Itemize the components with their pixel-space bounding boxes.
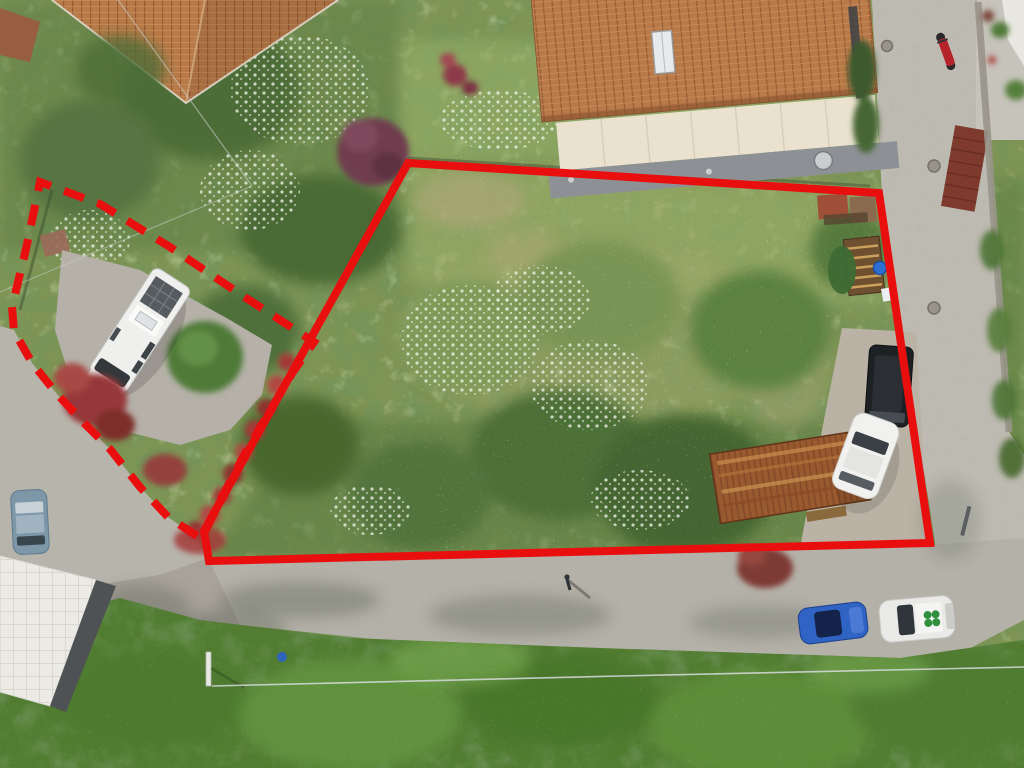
hatchback-car [10,489,49,555]
manhole [928,160,940,172]
manhole [928,302,940,314]
green-tarp [828,246,856,294]
manhole [882,41,893,52]
blue-barrel [874,262,887,275]
aerial-photo [0,0,1024,768]
brick-sheds [817,192,877,226]
main-house [527,0,899,199]
round-table [814,151,834,171]
blue-bucket [277,652,287,662]
aerial-photo-stage [0,0,1024,768]
blue-car [797,601,869,645]
utility-pole [206,652,211,686]
clover-car [878,595,955,643]
